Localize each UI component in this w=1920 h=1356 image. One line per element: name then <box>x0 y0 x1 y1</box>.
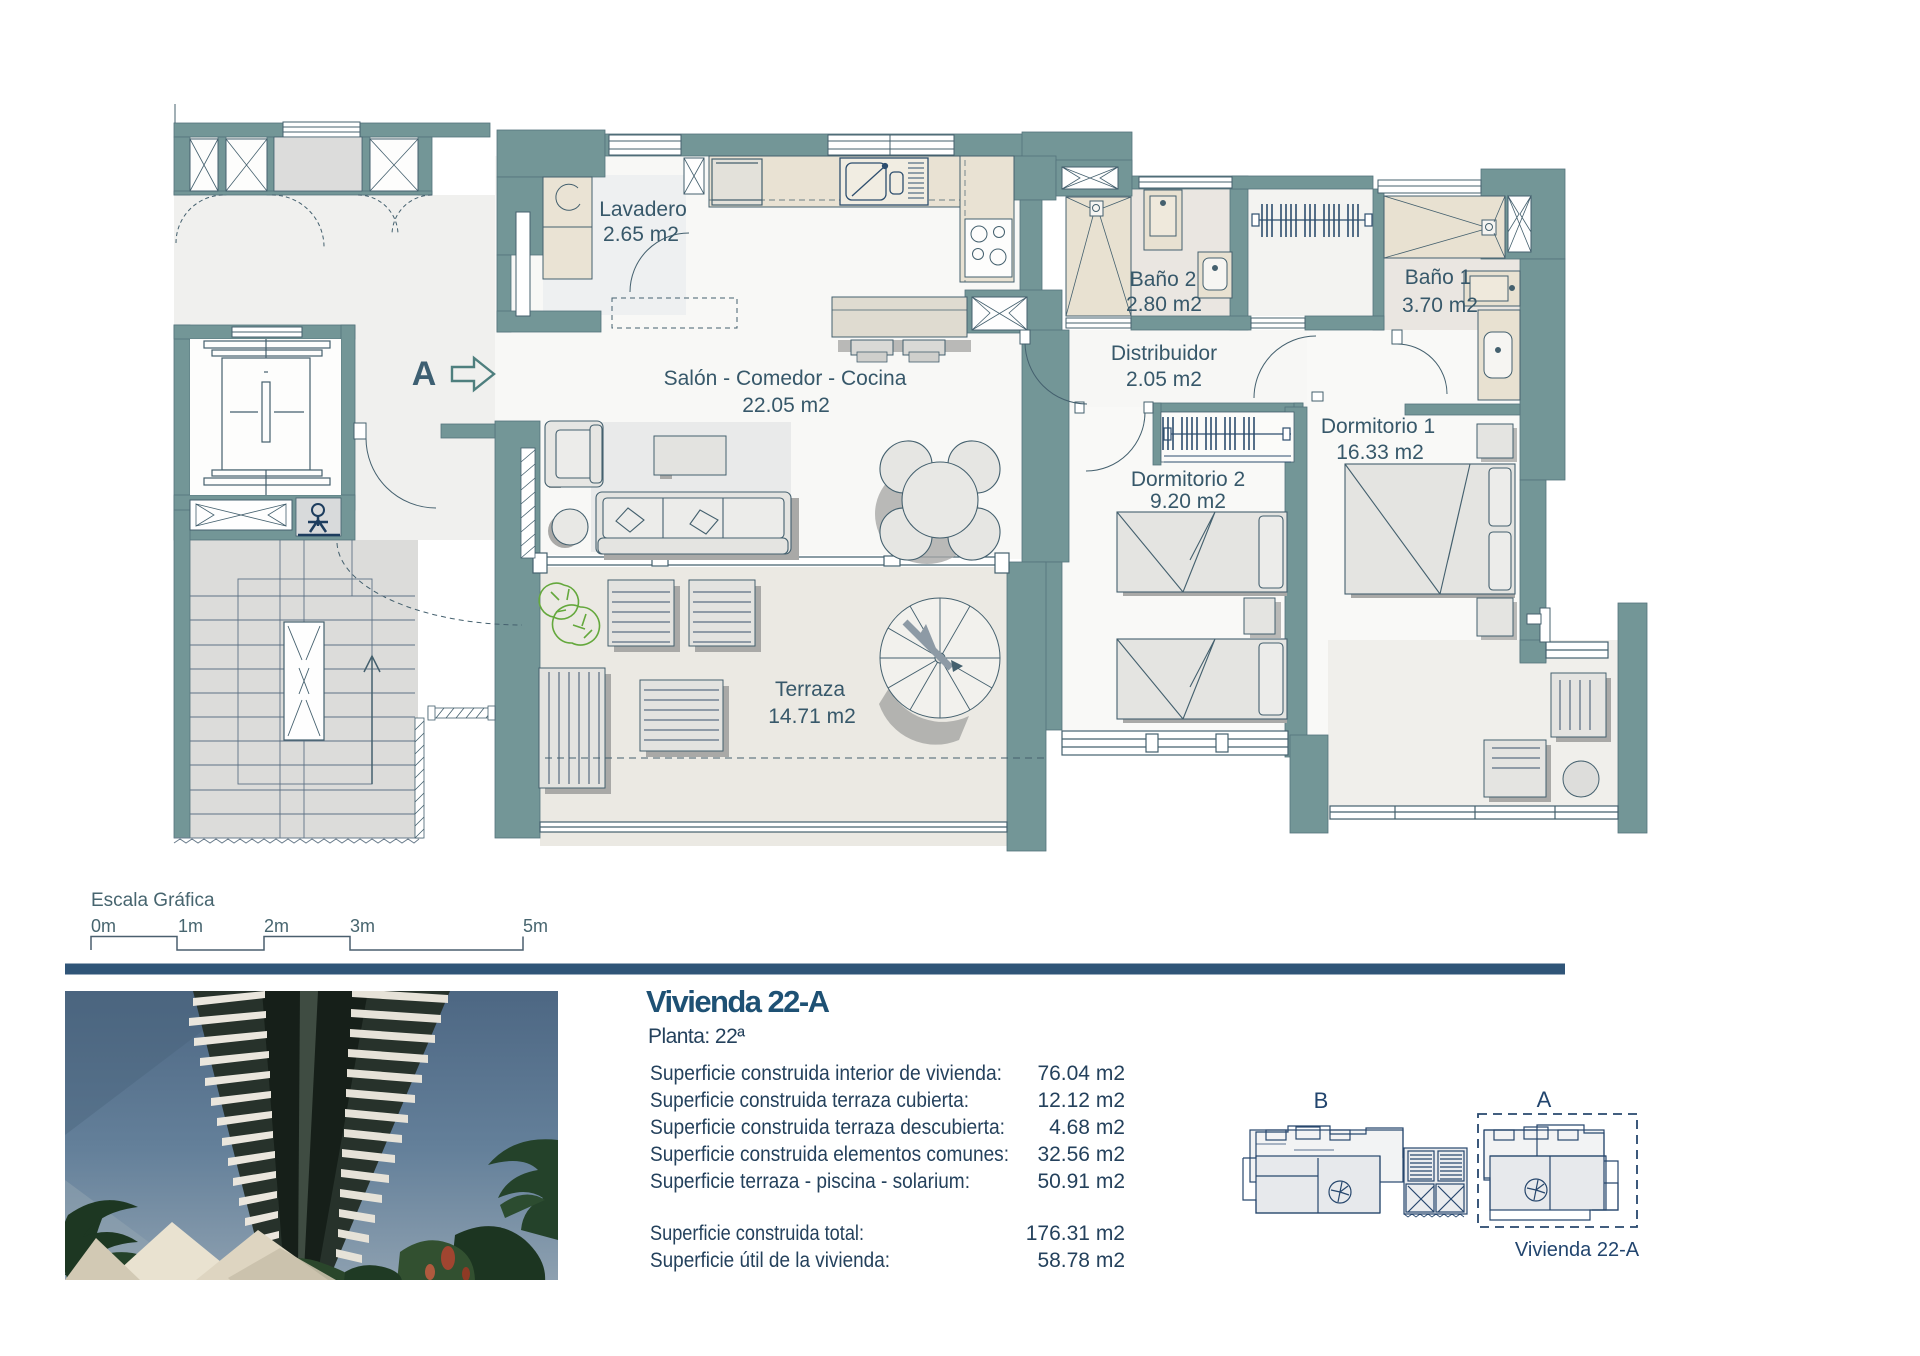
svg-text:32.56 m2: 32.56 m2 <box>1037 1143 1125 1166</box>
svg-text:Dormitorio 2: Dormitorio 2 <box>1131 468 1245 491</box>
svg-text:Baño 1: Baño 1 <box>1405 266 1472 289</box>
svg-text:4.68 m2: 4.68 m2 <box>1049 1116 1125 1139</box>
svg-text:Superficie construida elemento: Superficie construida elementos comunes: <box>650 1143 1009 1166</box>
svg-text:9.20 m2: 9.20 m2 <box>1150 490 1226 513</box>
svg-text:58.78 m2: 58.78 m2 <box>1037 1249 1125 1272</box>
svg-text:Escala Gráfica: Escala Gráfica <box>91 890 215 911</box>
svg-text:1m: 1m <box>178 916 203 936</box>
svg-text:A: A <box>1537 1087 1552 1112</box>
svg-text:12.12 m2: 12.12 m2 <box>1037 1089 1125 1112</box>
svg-text:Superficie construida total:: Superficie construida total: <box>650 1222 864 1245</box>
svg-text:B: B <box>1314 1088 1329 1113</box>
svg-text:5m: 5m <box>523 916 548 936</box>
svg-text:16.33 m2: 16.33 m2 <box>1336 441 1424 464</box>
svg-text:Planta: 22ª: Planta: 22ª <box>648 1025 745 1048</box>
svg-text:2m: 2m <box>264 916 289 936</box>
svg-text:3m: 3m <box>350 916 375 936</box>
svg-text:Lavadero: Lavadero <box>599 198 687 221</box>
svg-text:Superficie construida interior: Superficie construida interior de vivien… <box>650 1062 1002 1085</box>
svg-text:Superficie construida terraza: Superficie construida terraza cubierta: <box>650 1089 969 1112</box>
svg-text:22.05 m2: 22.05 m2 <box>742 394 830 417</box>
svg-text:Salón - Comedor - Cocina: Salón - Comedor - Cocina <box>664 367 907 390</box>
svg-text:2.65 m2: 2.65 m2 <box>603 223 679 246</box>
svg-text:A: A <box>412 355 437 393</box>
svg-text:176.31 m2: 176.31 m2 <box>1026 1222 1125 1245</box>
svg-text:Vivienda 22-A: Vivienda 22-A <box>646 984 830 1019</box>
svg-text:Distribuidor: Distribuidor <box>1111 342 1217 365</box>
svg-text:2.05 m2: 2.05 m2 <box>1126 368 1202 391</box>
svg-text:Dormitorio 1: Dormitorio 1 <box>1321 415 1435 438</box>
svg-text:50.91 m2: 50.91 m2 <box>1037 1170 1125 1193</box>
svg-text:Superficie construida terraza: Superficie construida terraza descubiert… <box>650 1116 1005 1139</box>
svg-text:14.71 m2: 14.71 m2 <box>768 705 856 728</box>
svg-text:3.70 m2: 3.70 m2 <box>1402 294 1478 317</box>
svg-text:2.80 m2: 2.80 m2 <box>1126 293 1202 316</box>
svg-text:76.04 m2: 76.04 m2 <box>1037 1062 1125 1085</box>
svg-text:0m: 0m <box>91 916 116 936</box>
svg-text:Vivienda 22-A: Vivienda 22-A <box>1515 1239 1640 1261</box>
svg-text:Baño 2: Baño 2 <box>1130 268 1197 291</box>
svg-text:Superficie útil de la vivienda: Superficie útil de la vivienda: <box>650 1249 890 1272</box>
svg-text:Superficie terraza - piscina -: Superficie terraza - piscina - solarium: <box>650 1170 970 1193</box>
svg-text:Terraza: Terraza <box>775 678 845 701</box>
